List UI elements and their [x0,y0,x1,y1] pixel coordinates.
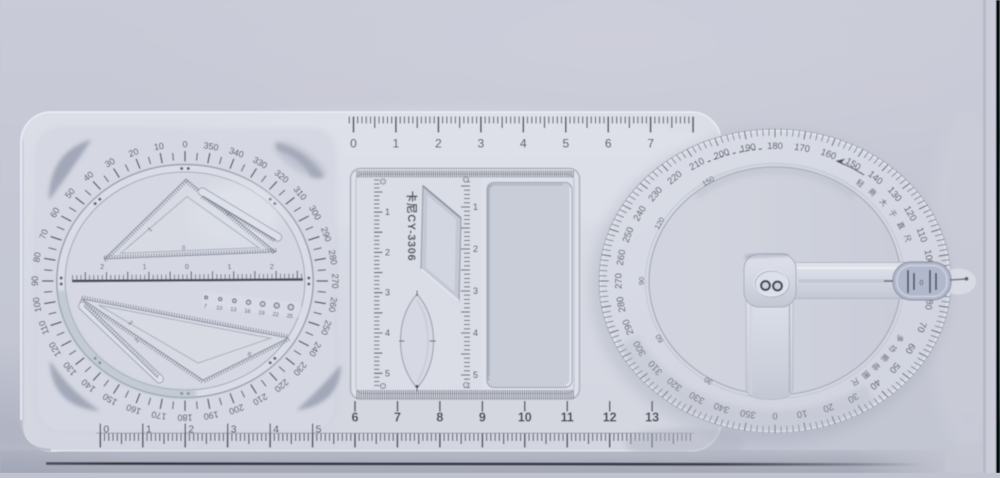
svg-text:4: 4 [473,328,478,338]
svg-text:0: 0 [350,137,357,151]
svg-text:0: 0 [182,139,187,149]
svg-text:22: 22 [272,312,279,319]
svg-text:9: 9 [479,411,486,425]
svg-text:7: 7 [647,137,654,151]
svg-text:6: 6 [605,137,612,151]
svg-text:12: 12 [603,411,617,425]
svg-text:7: 7 [394,411,401,425]
svg-text:270: 270 [330,273,340,288]
svg-text:1: 1 [227,264,231,271]
svg-text:1: 1 [146,424,152,436]
svg-text:1: 1 [473,202,478,212]
svg-text:1: 1 [143,264,147,271]
svg-text:90: 90 [30,276,40,286]
svg-text:10: 10 [153,141,165,153]
svg-text:5: 5 [316,424,322,436]
svg-text:90: 90 [637,277,646,285]
svg-text:13: 13 [230,307,237,314]
svg-text:19: 19 [258,310,265,317]
svg-text:3: 3 [478,137,485,151]
svg-text:2: 2 [188,424,194,436]
svg-text:3: 3 [473,286,478,296]
svg-text:80: 80 [31,251,43,263]
svg-text:8: 8 [436,411,443,425]
svg-text:2: 2 [473,244,478,254]
svg-text:25: 25 [286,313,293,320]
svg-text:1: 1 [385,207,390,217]
svg-text:2: 2 [270,264,274,271]
svg-text:270: 270 [614,273,625,289]
svg-text:4: 4 [385,328,390,338]
svg-text:5: 5 [473,370,478,380]
svg-text:0: 0 [185,264,189,271]
svg-text:2: 2 [100,264,104,271]
svg-text:0: 0 [103,424,109,436]
svg-text:2: 2 [385,247,390,257]
svg-text:5: 5 [385,368,390,378]
svg-text:13: 13 [645,411,659,425]
svg-text:0: 0 [920,280,924,287]
svg-text:180: 180 [177,413,192,423]
svg-text:16: 16 [244,308,251,315]
svg-text:5: 5 [562,137,569,151]
svg-text:4: 4 [520,137,527,151]
svg-text:6: 6 [352,411,359,425]
svg-text:2: 2 [435,137,442,151]
svg-text:3: 3 [231,424,237,436]
svg-text:卡尼CY-3306: 卡尼CY-3306 [405,191,419,261]
svg-text:1: 1 [393,137,400,151]
svg-text:11: 11 [561,411,574,425]
svg-text:10: 10 [216,305,223,312]
svg-text:10: 10 [518,411,532,425]
svg-text:4: 4 [273,424,279,436]
svg-text:180: 180 [767,141,783,152]
svg-text:3: 3 [385,288,390,298]
